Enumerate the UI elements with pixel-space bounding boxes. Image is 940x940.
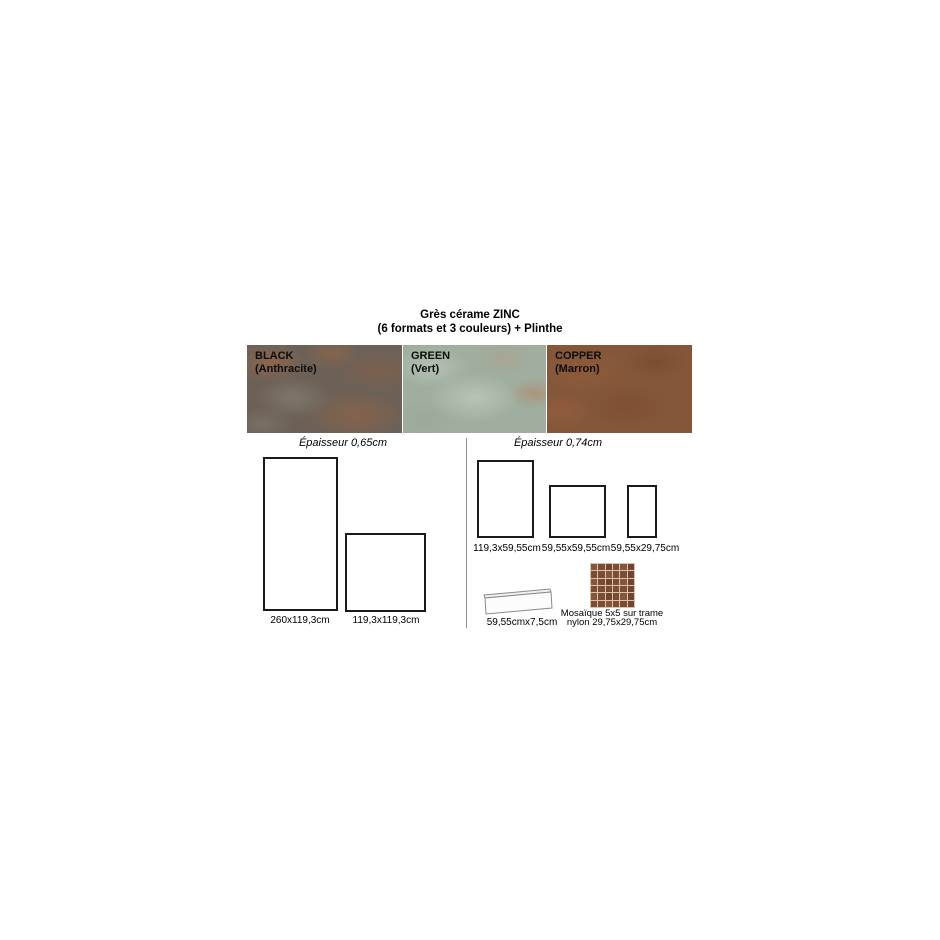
format-label-119x119: 119,3x119,3cm: [336, 615, 436, 626]
mosaic-cell: [628, 564, 634, 570]
mosaic-cell: [613, 586, 619, 592]
format-label-260x119: 260x119,3cm: [250, 615, 350, 626]
swatch-black-label: BLACK (Anthracite): [255, 350, 317, 376]
mosaic-cell: [628, 579, 634, 585]
format-label-59x29: 59,55x29,75cm: [595, 543, 695, 554]
mosaic-cell: [591, 593, 597, 599]
mosaic-cell: [591, 586, 597, 592]
mosaic-cell: [606, 571, 612, 577]
mosaic-cell: [620, 601, 626, 607]
title-line1: Grès cérame ZINC: [0, 309, 940, 323]
swatch-green-name: GREEN: [411, 350, 450, 363]
section-divider: [466, 438, 467, 628]
swatch-copper-subtitle: (Marron): [555, 363, 601, 376]
mosaic-label-line2: nylon 29,75x29,75cm: [547, 618, 677, 627]
mosaic-cell: [620, 579, 626, 585]
swatch-black-name: BLACK: [255, 350, 317, 363]
mosaic-cell: [598, 579, 604, 585]
format-rect-260x119: [263, 457, 338, 611]
mosaic-cell: [620, 571, 626, 577]
mosaic-cell: [613, 593, 619, 599]
mosaic-cell: [628, 571, 634, 577]
swatch-green-label: GREEN (Vert): [411, 350, 450, 376]
mosaic-cell: [598, 593, 604, 599]
swatch-black-subtitle: (Anthracite): [255, 363, 317, 376]
mosaic-cell: [598, 564, 604, 570]
format-rect-59x29: [627, 485, 657, 538]
mosaic-cell: [628, 593, 634, 599]
mosaic-cell: [598, 571, 604, 577]
swatch-copper-name: COPPER: [555, 350, 601, 363]
mosaic-cell: [613, 571, 619, 577]
color-swatch-band: BLACK (Anthracite) GREEN (Vert) COPPER (…: [247, 345, 692, 433]
swatch-black: BLACK (Anthracite): [247, 345, 402, 433]
mosaic-cell: [620, 564, 626, 570]
mosaic-cell: [606, 579, 612, 585]
mosaic-cell: [613, 579, 619, 585]
mosaic-cell: [598, 601, 604, 607]
mosaic-cell: [620, 586, 626, 592]
page-title: Grès cérame ZINC (6 formats et 3 couleur…: [0, 309, 940, 336]
title-line2: (6 formats et 3 couleurs) + Plinthe: [0, 323, 940, 337]
mosaic-cell: [628, 586, 634, 592]
thickness-label-left: Épaisseur 0,65cm: [247, 437, 439, 449]
mosaic-cell: [606, 586, 612, 592]
swatch-copper-label: COPPER (Marron): [555, 350, 601, 376]
tile-spec-sheet: Grès cérame ZINC (6 formats et 3 couleur…: [0, 0, 940, 940]
mosaic-cell: [620, 593, 626, 599]
mosaic-label: Mosaïque 5x5 sur trame nylon 29,75x29,75…: [547, 609, 677, 627]
swatch-green-subtitle: (Vert): [411, 363, 450, 376]
plinthe-drawing: [478, 583, 558, 619]
format-rect-119x119: [345, 533, 426, 612]
mosaic-cell: [628, 601, 634, 607]
swatch-copper: COPPER (Marron): [547, 345, 692, 433]
mosaic-cell: [606, 564, 612, 570]
mosaic-cell: [613, 601, 619, 607]
mosaic-cell: [606, 593, 612, 599]
mosaic-cell: [613, 564, 619, 570]
mosaic-cell: [591, 579, 597, 585]
mosaic-grid: [590, 563, 635, 608]
mosaic-cell: [598, 586, 604, 592]
mosaic-cell: [606, 601, 612, 607]
format-rect-59x59: [549, 485, 606, 538]
format-rect-119x59: [477, 460, 534, 538]
swatch-green: GREEN (Vert): [403, 345, 546, 433]
mosaic-cell: [591, 571, 597, 577]
thickness-label-right: Épaisseur 0,74cm: [478, 437, 638, 449]
mosaic-cell: [591, 601, 597, 607]
mosaic-cell: [591, 564, 597, 570]
